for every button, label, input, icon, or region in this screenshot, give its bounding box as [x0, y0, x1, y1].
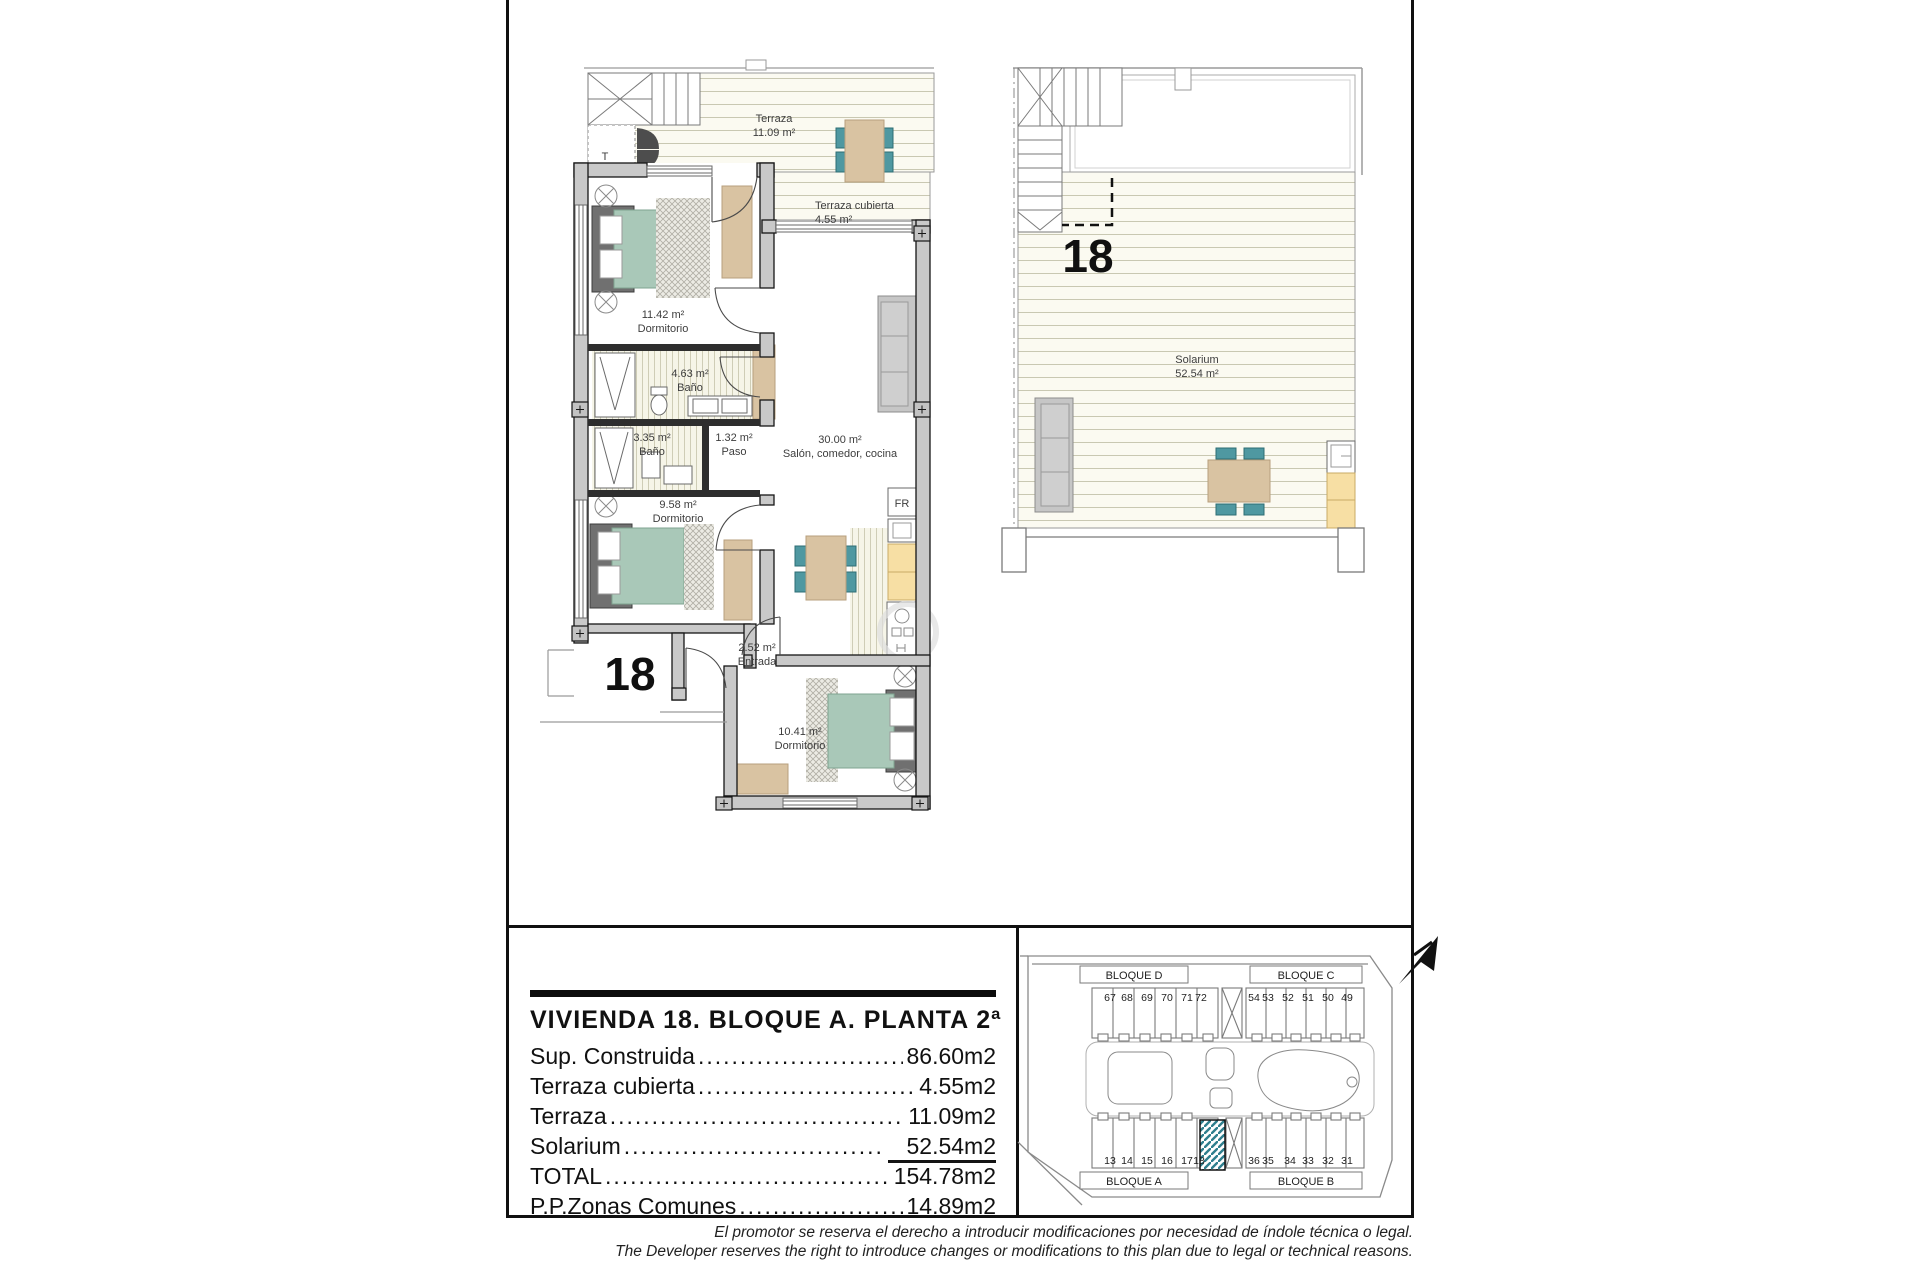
row-label: Sup. Construida: [530, 1043, 695, 1070]
roof-notch: [1175, 68, 1191, 90]
svg-text:17: 17: [1181, 1155, 1193, 1167]
disclaimer: El promotor se reserva el derecho a intr…: [615, 1223, 1413, 1261]
room-area: 11.42 m²: [642, 309, 685, 321]
svg-text:52: 52: [1282, 992, 1294, 1004]
block-name: BLOQUE C: [1278, 970, 1335, 982]
wardrobe: [724, 540, 752, 620]
leader-dots: ........................................…: [698, 1043, 904, 1070]
row-value: 4.55m2: [919, 1073, 996, 1100]
stairs-main: [588, 73, 700, 125]
room-label: Entrada: [738, 656, 777, 668]
row-value-underlined: 52.54m2: [888, 1133, 996, 1163]
row-value: 14.89m2: [906, 1193, 996, 1220]
solarium-sofa: [1035, 398, 1073, 512]
svg-text:70: 70: [1161, 992, 1173, 1004]
svg-text:49: 49: [1341, 992, 1353, 1004]
svg-text:71: 71: [1181, 992, 1193, 1004]
fridge-label: FR: [895, 498, 910, 510]
room-area: 4.63 m²: [671, 368, 709, 380]
svg-text:53: 53: [1262, 992, 1274, 1004]
room-label: Terraza cubierta: [815, 200, 895, 212]
room-area: 2.52 m²: [738, 642, 776, 654]
table-row: TOTAL ..................................…: [530, 1163, 996, 1193]
block-name: BLOQUE D: [1106, 970, 1163, 982]
block-name: BLOQUE B: [1278, 1176, 1334, 1188]
svg-text:16: 16: [1161, 1155, 1173, 1167]
leader-dots: ........................................…: [698, 1073, 916, 1100]
svg-text:15: 15: [1141, 1155, 1153, 1167]
room-label: Solarium: [1175, 354, 1218, 366]
row-label: TOTAL: [530, 1163, 602, 1190]
row-label: P.P.Zonas Comunes: [530, 1193, 736, 1220]
room-label: Dormitorio: [638, 323, 689, 335]
kitchen-appliances: FR: [887, 488, 916, 658]
unit-number: 18: [1062, 230, 1113, 282]
area-table: VIVIENDA 18. BLOQUE A. PLANTA 2ª Sup. Co…: [530, 990, 996, 1223]
table-row: Terraza ................................…: [530, 1103, 996, 1133]
block-name: BLOQUE A: [1106, 1176, 1162, 1188]
row-label: Terraza: [530, 1103, 607, 1130]
room-area: 11.09 m²: [753, 127, 796, 139]
room-area: 10.41 m²: [778, 726, 822, 738]
wardrobe: [722, 186, 752, 278]
bed-dormitorio-3: [828, 690, 918, 772]
plan-title: VIVIENDA 18. BLOQUE A. PLANTA 2ª: [530, 1006, 996, 1035]
spa-shape: [1210, 1088, 1232, 1108]
leader-dots: ........................................…: [610, 1103, 905, 1130]
solarium-pillars: [1002, 528, 1364, 572]
svg-text:33: 33: [1302, 1155, 1314, 1167]
table-row: P.P.Zonas Comunes ......................…: [530, 1193, 996, 1223]
svg-text:34: 34: [1284, 1155, 1296, 1167]
svg-text:51: 51: [1302, 992, 1314, 1004]
terrace-closet-label: T: [602, 151, 609, 163]
table-row: Solarium ...............................…: [530, 1133, 996, 1163]
svg-text:72: 72: [1195, 992, 1207, 1004]
row-value: 86.60m2: [906, 1043, 996, 1070]
svg-text:50: 50: [1322, 992, 1334, 1004]
site-plan: BLOQUE D BLOQUE C BLOQUE A BLOQUE B 67 6…: [1018, 936, 1438, 1205]
svg-text:68: 68: [1121, 992, 1133, 1004]
main-floor-plan: T: [540, 60, 936, 810]
room-label: Paso: [721, 446, 746, 458]
room-label: Dormitorio: [775, 740, 826, 752]
room-area: 4.55 m²: [815, 214, 853, 226]
svg-text:14: 14: [1121, 1155, 1133, 1167]
room-label: Baño: [639, 446, 665, 458]
svg-text:35: 35: [1262, 1155, 1274, 1167]
room-area: 1.32 m²: [715, 432, 753, 444]
sideboard: [734, 764, 788, 794]
room-area: 30.00 m²: [818, 434, 862, 446]
leader-dots: ........................................…: [605, 1163, 891, 1190]
row-label: Terraza cubierta: [530, 1073, 695, 1100]
table-top-rule: [530, 990, 996, 997]
row-label: Solarium: [530, 1133, 621, 1160]
room-area: 9.58 m²: [659, 499, 697, 511]
row-value: 11.09m2: [908, 1103, 996, 1130]
room-label: Baño: [677, 382, 703, 394]
disclaimer-line-es: El promotor se reserva el derecho a intr…: [615, 1223, 1413, 1242]
rug: [684, 524, 714, 610]
sofa: [878, 296, 916, 412]
leader-dots: ........................................…: [624, 1133, 886, 1160]
unit-number: 18: [604, 648, 655, 700]
svg-text:31: 31: [1341, 1155, 1353, 1167]
row-value: 154.78m2: [894, 1163, 996, 1190]
terrace-parapet-notch: [746, 60, 766, 70]
leader-dots: ........................................…: [739, 1193, 903, 1220]
spa-shape: [1206, 1048, 1234, 1080]
terrace-dining-set: [836, 120, 893, 182]
rug: [656, 198, 710, 298]
pool-kidney: [1258, 1050, 1359, 1111]
svg-text:36: 36: [1248, 1155, 1260, 1167]
room-area: 3.35 m²: [633, 432, 671, 444]
svg-text:69: 69: [1141, 992, 1153, 1004]
svg-text:13: 13: [1104, 1155, 1116, 1167]
pool-rect: [1108, 1052, 1172, 1104]
svg-text:32: 32: [1322, 1155, 1334, 1167]
room-area: 52.54 m²: [1175, 368, 1219, 380]
bed-dormitorio-2: [590, 524, 684, 608]
room-label: Dormitorio: [653, 513, 704, 525]
room-label: Terraza: [756, 113, 794, 125]
svg-text:54: 54: [1248, 992, 1260, 1004]
table-row: Terraza cubierta .......................…: [530, 1073, 996, 1103]
solarium-plan: Solarium 52.54 m² 18: [1002, 68, 1364, 572]
disclaimer-line-en: The Developer reserves the right to intr…: [615, 1242, 1413, 1261]
solarium-cabinet: [1327, 441, 1355, 528]
svg-text:67: 67: [1104, 992, 1116, 1004]
table-row: Sup. Construida ........................…: [530, 1043, 996, 1073]
svg-text:18: 18: [1193, 1155, 1205, 1167]
room-label: Salón, comedor, cocina: [783, 448, 898, 460]
